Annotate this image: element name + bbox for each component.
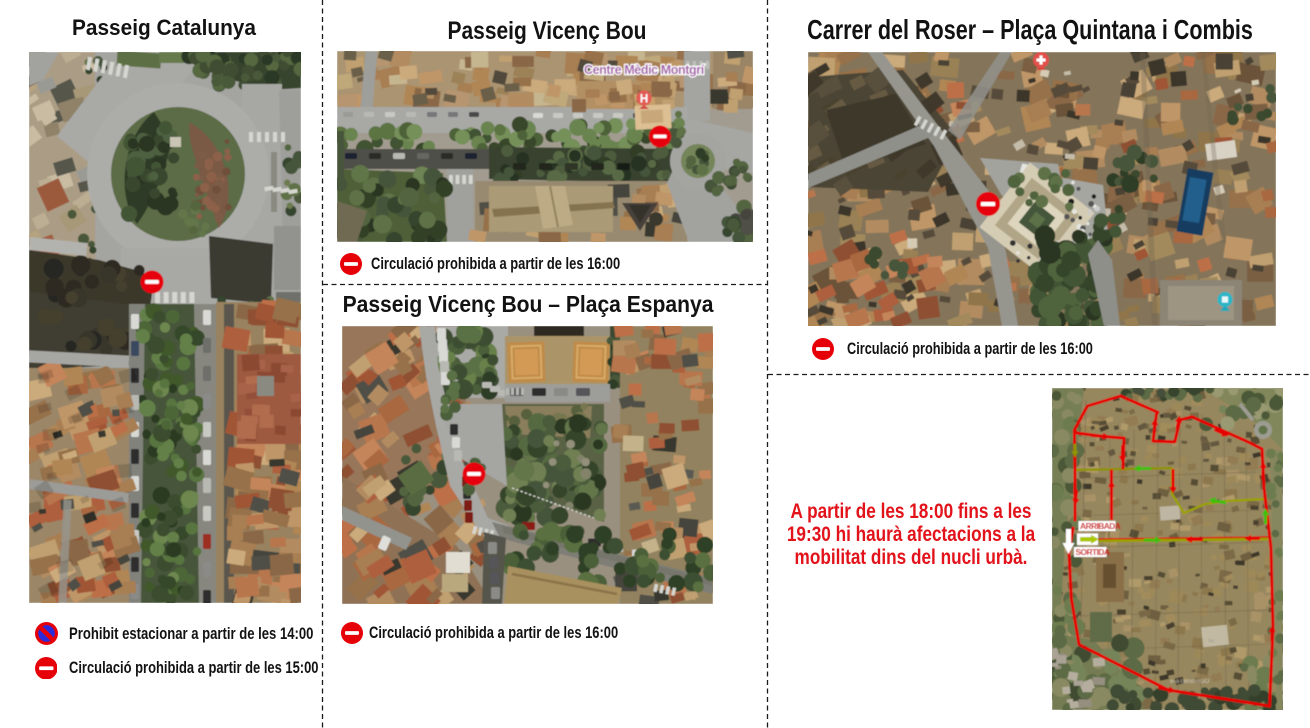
svg-text:e-a-tamicofGO: e-a-tamicofGO	[1170, 679, 1210, 685]
svg-text:Centre Mèdic Montgrí: Centre Mèdic Montgrí	[584, 63, 705, 77]
svg-text:SORTIDA: SORTIDA	[1076, 547, 1110, 557]
svg-text:H: H	[640, 94, 648, 106]
svg-text:ARRIBADA: ARRIBADA	[1080, 521, 1121, 531]
